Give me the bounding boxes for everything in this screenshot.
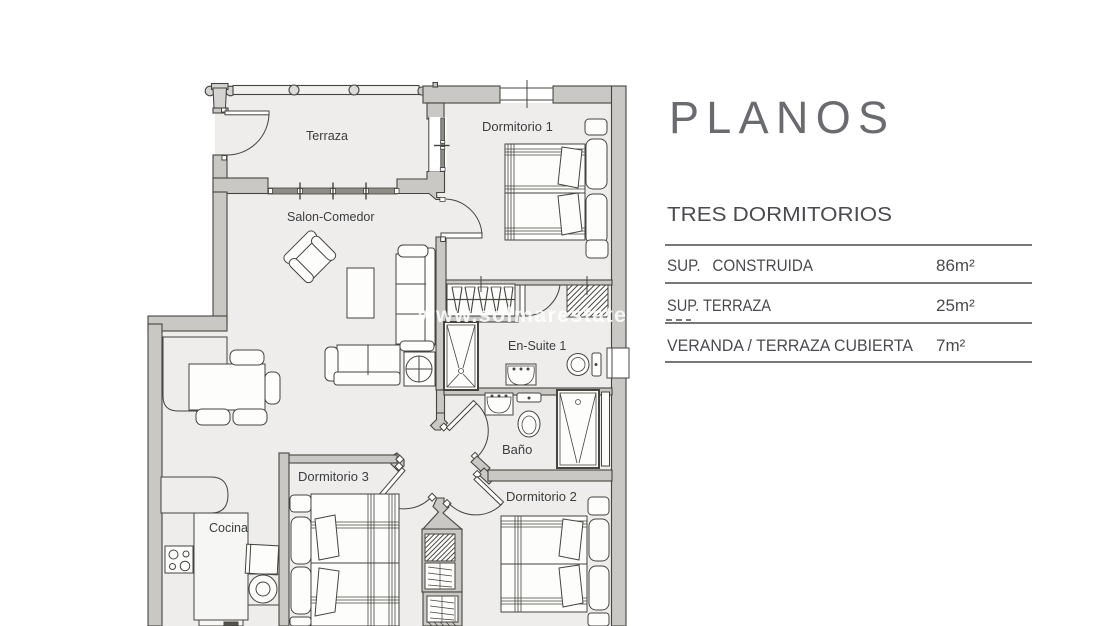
svg-text:En-Suite 1: En-Suite 1 xyxy=(508,339,566,353)
svg-text:Dormitorio 3: Dormitorio 3 xyxy=(298,469,369,484)
svg-text:VERANDA / TERRAZA CUBIERTA: VERANDA / TERRAZA CUBIERTA xyxy=(667,336,914,355)
svg-text:SUP. CONSTRUIDA: SUP. CONSTRUIDA xyxy=(667,256,814,275)
svg-text:Terraza: Terraza xyxy=(306,129,348,143)
svg-text:25m²: 25m² xyxy=(936,296,975,315)
svg-text:TRES DORMITORIOS: TRES DORMITORIOS xyxy=(667,203,892,226)
svg-text:www.solmarestate: www.solmarestate xyxy=(417,303,626,327)
svg-text:Cocina: Cocina xyxy=(209,521,248,535)
svg-text:Dormitorio 2: Dormitorio 2 xyxy=(506,489,577,504)
svg-text:Dormitorio 1: Dormitorio 1 xyxy=(482,119,553,134)
svg-text:86m²: 86m² xyxy=(936,256,975,275)
svg-text:Salon-Comedor: Salon-Comedor xyxy=(287,210,375,224)
svg-text:SUP. TERRAZA: SUP. TERRAZA xyxy=(667,296,772,315)
svg-text:Baño: Baño xyxy=(502,442,532,457)
svg-text:PLANOS: PLANOS xyxy=(669,92,888,143)
svg-text:7m²: 7m² xyxy=(936,336,966,355)
